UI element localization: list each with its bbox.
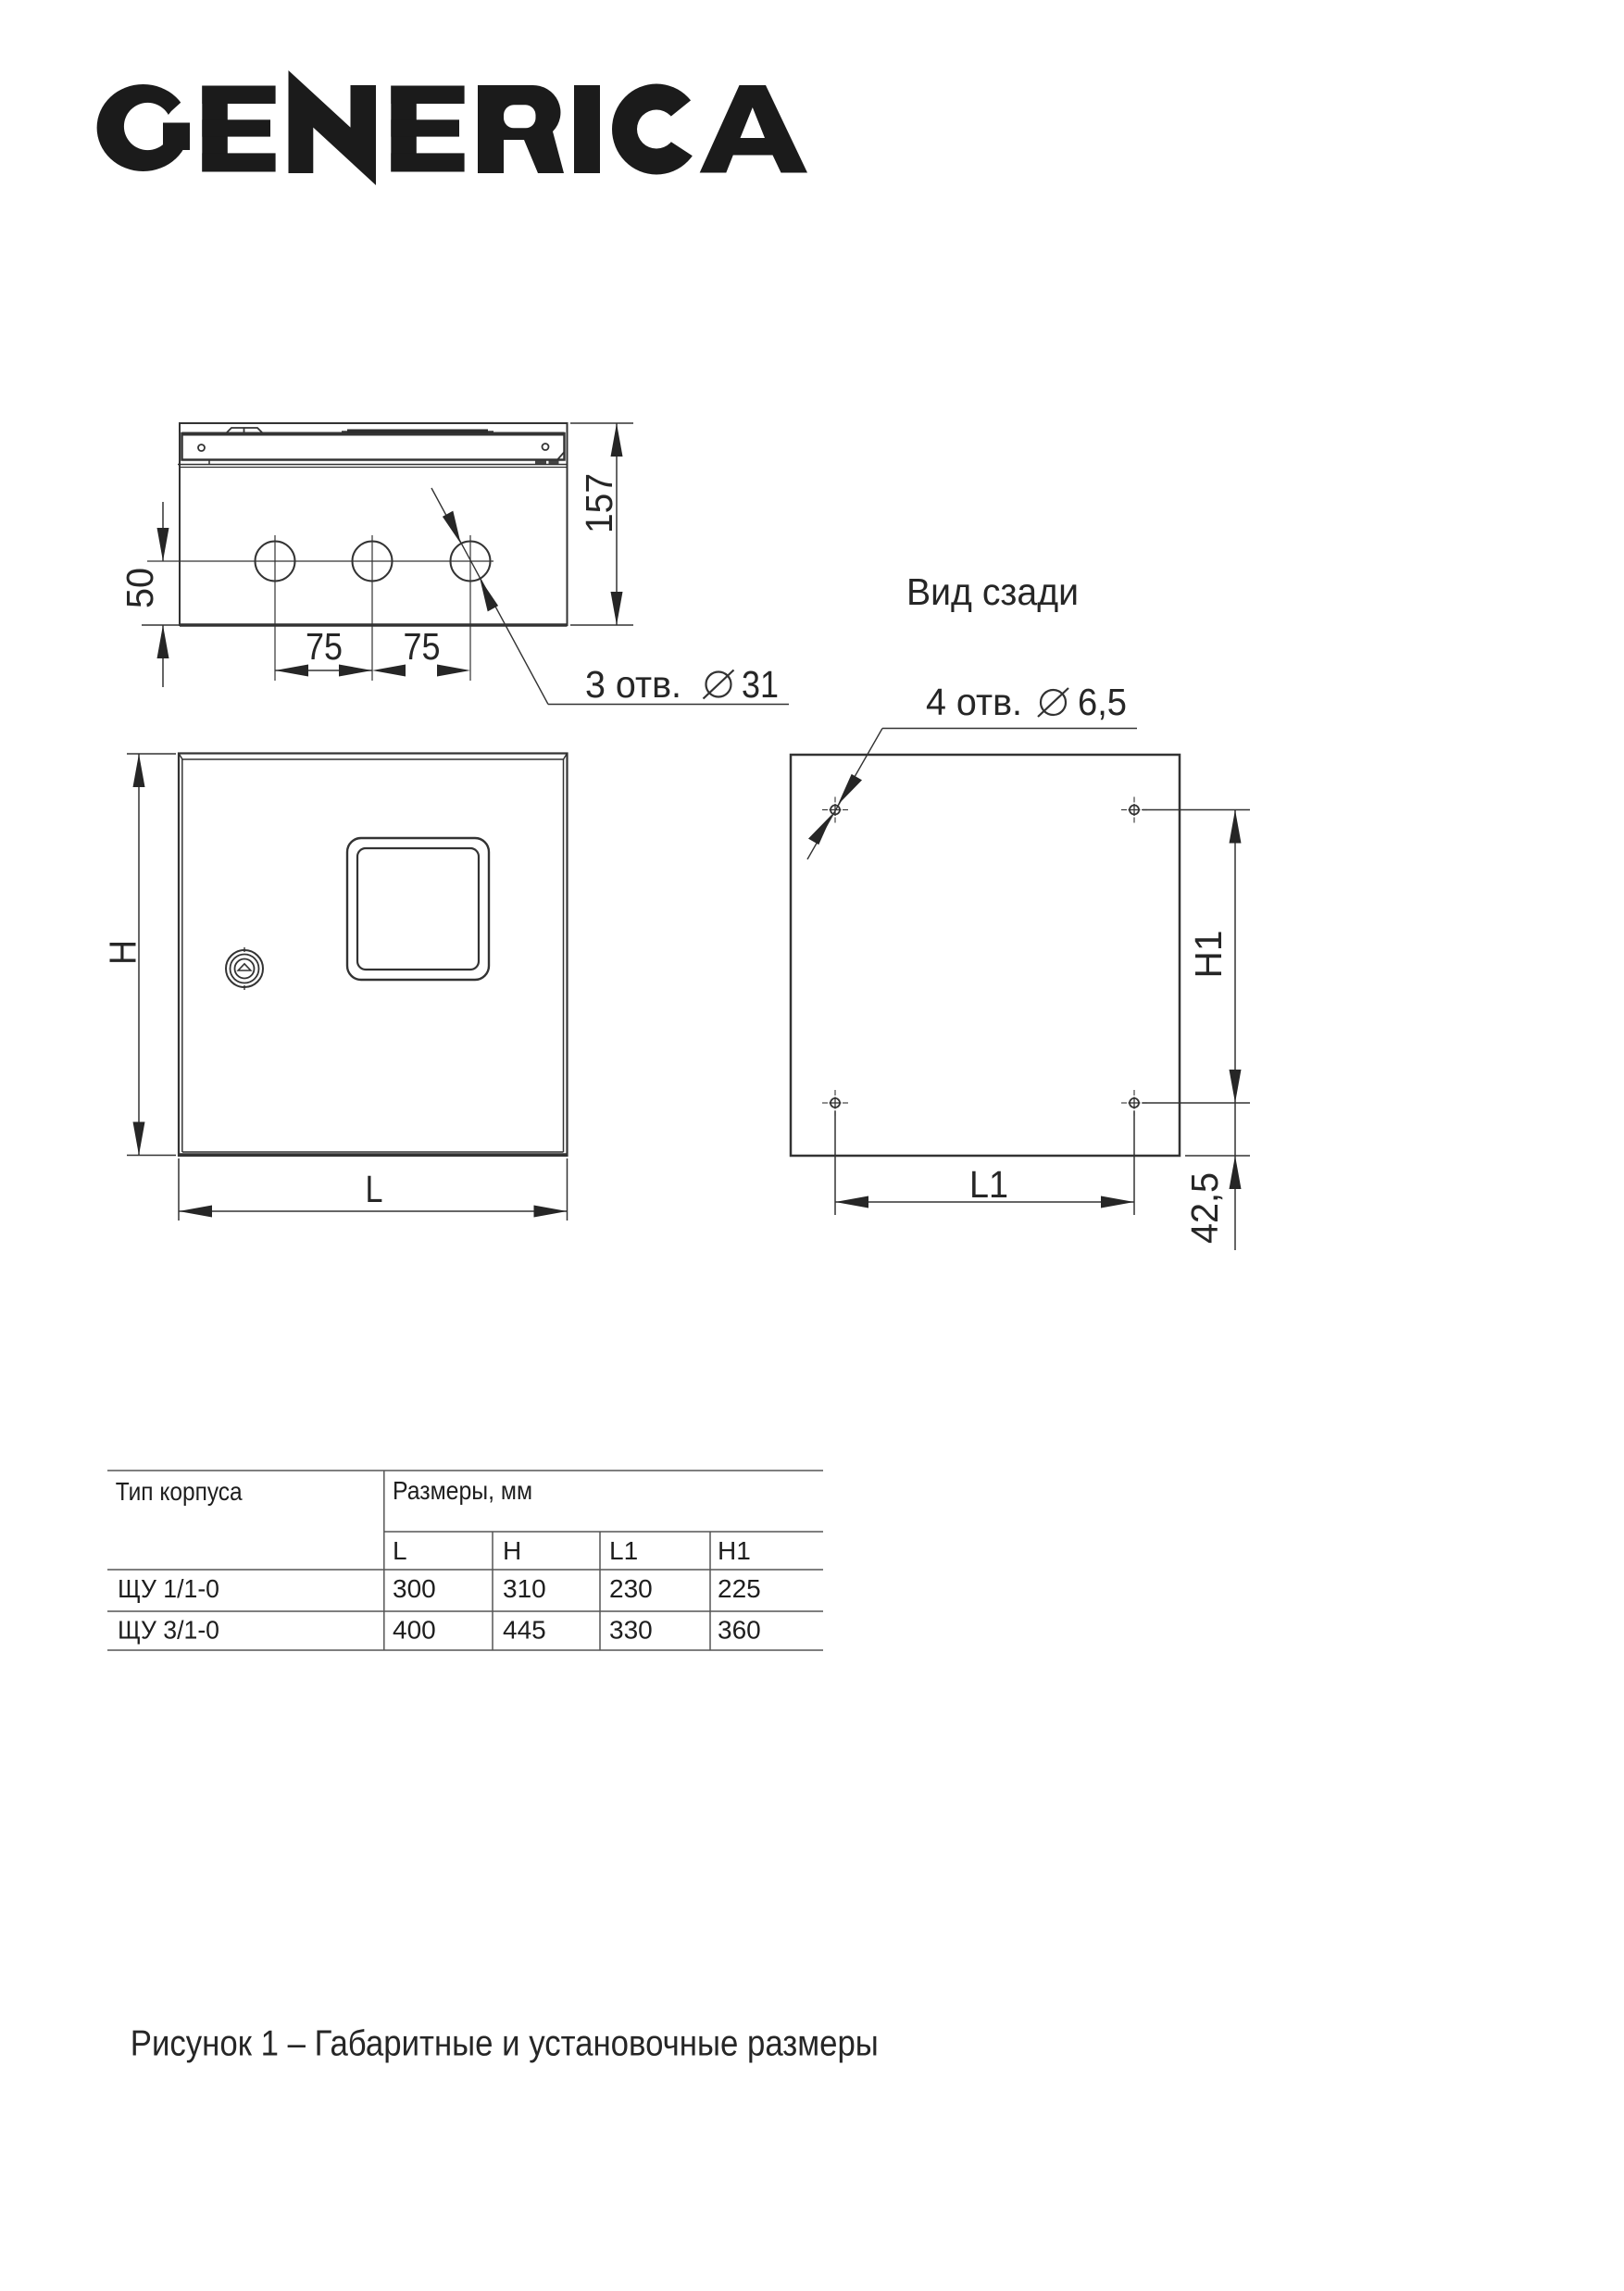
svg-text:4 отв.: 4 отв.: [926, 681, 1022, 723]
svg-text:L: L: [366, 1168, 383, 1210]
svg-text:H1: H1: [718, 1536, 751, 1565]
svg-text:ЩУ 1/1-0: ЩУ 1/1-0: [118, 1574, 219, 1603]
svg-text:42,5: 42,5: [1183, 1172, 1226, 1244]
svg-text:157: 157: [578, 473, 620, 533]
svg-text:L1: L1: [609, 1536, 638, 1565]
svg-text:75: 75: [404, 625, 441, 668]
svg-text:H: H: [503, 1536, 521, 1565]
svg-text:230: 230: [609, 1574, 653, 1603]
svg-text:ЩУ 3/1-0: ЩУ 3/1-0: [118, 1616, 219, 1645]
svg-text:Тип корпуса: Тип корпуса: [116, 1477, 243, 1506]
svg-text:330: 330: [609, 1616, 653, 1645]
svg-text:Размеры, мм: Размеры, мм: [393, 1476, 532, 1505]
svg-text:400: 400: [393, 1616, 436, 1645]
svg-text:6,5: 6,5: [1078, 681, 1127, 723]
svg-text:Вид сзади: Вид сзади: [906, 570, 1079, 613]
svg-text:Рисунок 1 – Габаритные и устан: Рисунок 1 – Габаритные и установочные ра…: [131, 2024, 879, 2064]
svg-text:L1: L1: [969, 1163, 1008, 1206]
svg-text:H: H: [102, 940, 144, 965]
svg-text:225: 225: [718, 1574, 761, 1603]
svg-text:3 отв.: 3 отв.: [585, 663, 681, 706]
svg-text:L: L: [393, 1536, 407, 1565]
svg-text:31: 31: [742, 663, 779, 706]
svg-text:360: 360: [718, 1616, 761, 1645]
svg-text:50: 50: [119, 568, 161, 608]
svg-text:310: 310: [503, 1574, 546, 1603]
svg-text:H1: H1: [1187, 931, 1230, 979]
svg-text:445: 445: [503, 1616, 546, 1645]
svg-text:300: 300: [393, 1574, 436, 1603]
svg-text:75: 75: [306, 625, 343, 668]
